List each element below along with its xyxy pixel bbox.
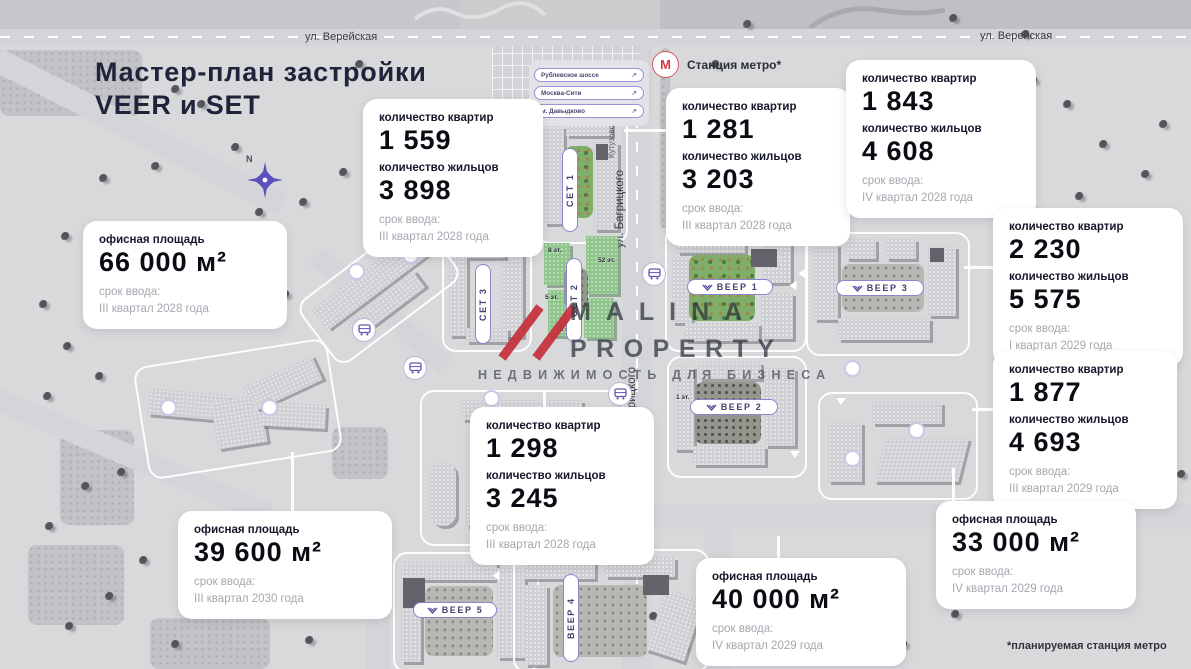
card-connector [964,266,995,269]
direction-label: м. Давыдково [541,108,585,115]
direction-label: Москва-Сити [541,90,581,97]
tree-icon [1100,140,1107,147]
block-arrow-icon [493,571,500,581]
term-value: III квартал 2030 года [194,591,376,608]
residents-label: количество жильцов [1009,414,1161,426]
term-value: IV квартал 2029 года [952,581,1120,598]
bus-stop-icon [642,262,666,286]
floor-label-1: 1 эт. [676,394,689,401]
direction-label: Рублевское шоссе [541,72,599,79]
term-label: срок ввода: [712,621,890,638]
tree-icon [100,174,107,181]
bus-stop-icon [403,356,427,380]
apartments-value: 1 843 [862,87,1020,116]
veer-logo-icon [427,607,438,614]
term-value: III квартал 2029 года [1009,481,1161,498]
building-label-veer3: ВЕЕР 3 [836,280,924,296]
street-label-vereyskaya-right: ул. Верейская [980,30,1052,42]
building-set2-tower [586,236,618,294]
card-connector [952,468,955,502]
veer-logo-icon [852,285,863,292]
office-area-label: офисная площадь [194,524,376,536]
residents-label: количество жильцов [486,470,638,482]
bus-stop-icon [352,318,376,342]
residents-label: количество жильцов [682,151,834,163]
tree-icon [300,198,307,205]
apartments-label: количество квартир [486,420,638,432]
tree-icon [140,556,147,563]
tree-icon [44,392,51,399]
block-veer4 [513,549,709,669]
apartments-value: 1 281 [682,115,834,144]
residents-value: 3 245 [486,484,638,513]
tree-icon [1064,100,1071,107]
tree-icon [256,208,263,215]
entrance-marker [908,422,925,439]
compass: N [243,156,287,204]
block-arrow-icon [790,281,797,291]
tree-icon [340,168,347,175]
direction-rublevskoe[interactable]: Рублевское шоссе ↗ [534,68,644,82]
tree-icon [46,522,53,529]
tree-icon [64,342,71,349]
term-value: IV квартал 2028 года [862,190,1020,207]
arrow-icon: ↗ [632,89,637,97]
entrance-marker [844,360,861,377]
veer-logo-icon [702,284,713,291]
apartments-value: 2 230 [1009,235,1167,264]
office-area-label: офисная площадь [712,571,890,583]
term-label: срок ввода: [194,574,376,591]
metro-station: М Станция метро* [652,51,781,78]
park-path-decoration [800,0,950,28]
building-label-veer2: ВЕЕР 2 [690,399,778,415]
tree-icon [82,482,89,489]
direction-moscow-city[interactable]: Москва-Сити ↗ [534,86,644,100]
office-card-39600: офисная площадь 39 600 м² срок ввода: II… [178,511,392,619]
residents-label: количество жильцов [862,123,1020,135]
info-card-east: количество квартир 1 877 количество жиль… [993,351,1177,509]
tree-icon [1178,470,1185,477]
block-arrow-icon [836,398,846,405]
metro-icon: М [652,51,679,78]
info-card-set1: количество квартир 1 559 количество жиль… [363,99,543,257]
watermark-brand-line1: MALINA [570,298,784,327]
residents-value: 4 693 [1009,428,1161,457]
page-title-line2: VEER и SET [95,89,427,122]
compass-north-label: N [246,154,253,164]
tree-icon [1076,192,1083,199]
terrain-strip [0,0,460,29]
building-label-set3: СЕТ 3 [475,264,491,344]
park-path-decoration [410,1,550,27]
residents-value: 4 608 [862,137,1020,166]
street-label-bagritskogo-upper: ул. Багрицкого [614,158,626,248]
apartments-value: 1 559 [379,126,527,155]
floor-label-52: 52 эт. [598,257,615,264]
tree-icon [62,232,69,239]
office-card-40000: офисная площадь 40 000 м² срок ввода: IV… [696,558,906,666]
residents-value: 3 203 [682,165,834,194]
office-area-value: 39 600 м² [194,538,376,567]
metro-station-label: Станция метро* [687,58,781,72]
footnote-planned-metro: *планируемая станция метро [1007,640,1167,652]
term-label: срок ввода: [1009,464,1161,481]
office-area-value: 33 000 м² [952,528,1120,557]
floor-label-8: 8 эт. [548,247,561,254]
directions-panel: Рублевское шоссе ↗ Москва-Сити ↗ м. Давы… [529,60,649,126]
office-area-label: офисная площадь [99,234,271,246]
building-label-veer1: ВЕЕР 1 [687,279,773,295]
residents-value: 5 575 [1009,285,1167,314]
office-area-label: офисная площадь [952,514,1120,526]
entrance-marker [348,263,365,280]
block-arrow-icon [790,451,800,458]
tree-icon [96,372,103,379]
tree-icon [152,162,159,169]
term-label: срок ввода: [379,212,527,229]
term-label: срок ввода: [1009,321,1167,338]
tree-icon [744,20,751,27]
office-card-33000: офисная площадь 33 000 м² срок ввода: IV… [936,501,1136,609]
term-label: срок ввода: [862,173,1020,190]
bus-stop-icon [608,382,632,406]
term-value: III квартал 2028 года [486,537,638,554]
block-arrow-icon [799,269,806,279]
card-connector [972,408,995,411]
card-connector [624,129,668,132]
street-label-vereyskaya-left: ул. Верейская [305,31,377,43]
building-label-veer5: ВЕЕР 5 [413,602,497,618]
tree-icon [66,622,73,629]
entrance-marker [261,399,278,416]
term-value: III квартал 2028 года [682,218,834,235]
term-label: срок ввода: [682,201,834,218]
term-label: срок ввода: [952,564,1120,581]
info-card-veer3: количество квартир 2 230 количество жиль… [993,208,1183,366]
direction-davydkovo[interactable]: м. Давыдково ↗ [534,104,644,118]
watermark-brand-line2: PROPERTY [570,335,784,364]
apartments-value: 1 877 [1009,378,1161,407]
parcel [28,545,124,625]
parcel [150,618,270,669]
apartments-label: количество квартир [1009,364,1161,376]
apartments-label: количество квартир [862,73,1020,85]
entrance-marker [844,450,861,467]
tree-icon [106,592,113,599]
tree-icon [232,143,239,150]
page-title-line1: Мастер-план застройки [95,56,427,89]
veer-logo-icon [706,404,717,411]
term-label: срок ввода: [99,284,271,301]
term-value: III квартал 2028 года [99,301,271,318]
apartments-value: 1 298 [486,434,638,463]
arrow-icon: ↗ [632,71,637,79]
term-label: срок ввода: [486,520,638,537]
residents-label: количество жильцов [379,162,527,174]
office-card-66000: офисная площадь 66 000 м² срок ввода: II… [83,221,287,329]
tree-icon [40,300,47,307]
watermark-brand: MALINA PROPERTY [570,298,784,364]
master-plan-map: ул. Верейская ул. Верейская Кутузовский … [0,0,1191,669]
term-value: III квартал 2028 года [379,229,527,246]
page-title: Мастер-план застройки VEER и SET [95,56,427,122]
apartments-label: количество квартир [1009,221,1167,233]
entrance-marker [483,390,500,407]
info-card-veer1: количество квартир 1 281 количество жиль… [666,88,850,246]
tree-icon [172,640,179,647]
residents-label: количество жильцов [1009,271,1167,283]
tree-icon [118,468,125,475]
residents-value: 3 898 [379,176,527,205]
tree-icon [306,636,313,643]
arrow-icon: ↗ [632,107,637,115]
info-card-northeast: количество квартир 1 843 количество жиль… [846,60,1036,218]
office-area-value: 66 000 м² [99,248,271,277]
watermark-tagline: НЕДВИЖИМОСТЬ ДЛЯ БИЗНЕСА [478,368,831,382]
building-label-set1: СЕТ 1 [562,148,578,232]
tree-icon [952,610,959,617]
building-label-veer4: ВЕЕР 4 [563,574,579,662]
info-card-center: количество квартир 1 298 количество жиль… [470,407,654,565]
term-value: IV квартал 2029 года [712,638,890,655]
tree-icon [1160,120,1167,127]
card-connector [291,452,294,512]
apartments-label: количество квартир [682,101,834,113]
card-connector [777,536,780,559]
tree-icon [1142,170,1149,177]
entrance-marker [160,399,177,416]
office-area-value: 40 000 м² [712,585,890,614]
tree-icon [950,14,957,21]
card-connector [543,390,546,408]
